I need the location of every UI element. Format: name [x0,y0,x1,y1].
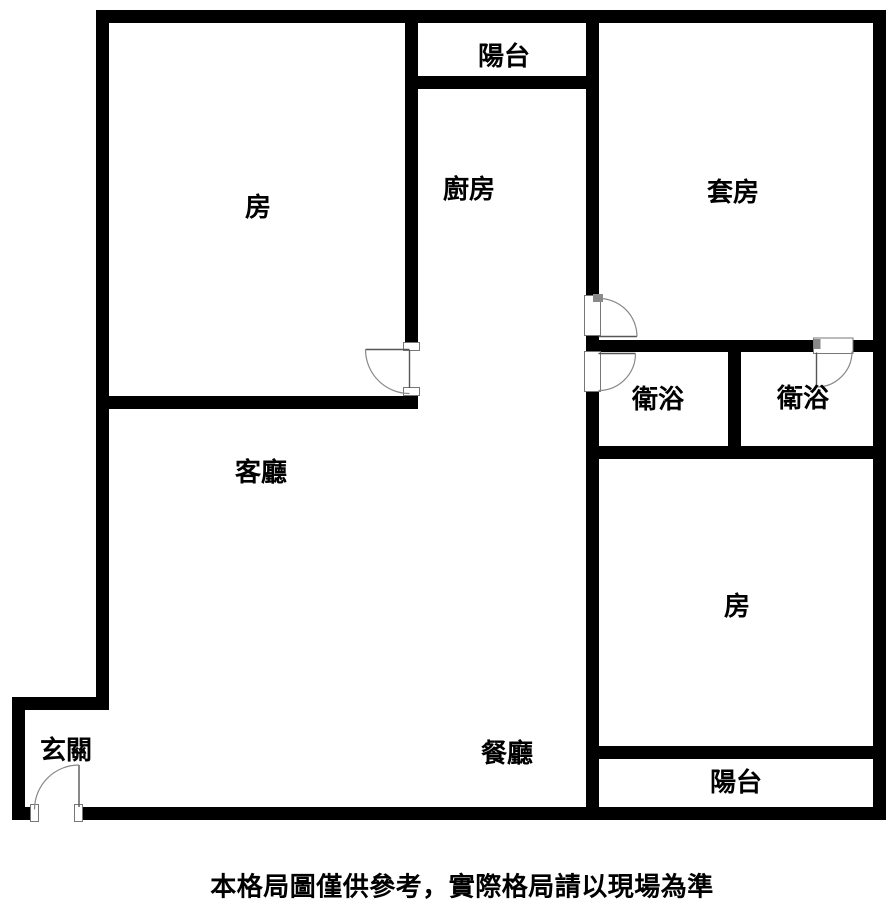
door-swing-bathroom-right [814,338,854,387]
disclaimer-text: 本格局圖僅供參考，實際格局請以現場為準 [210,867,714,904]
room-label-living-room: 客廳 [235,459,287,485]
room-label-balcony-bottom: 陽台 [710,769,762,795]
room-label-bedroom-bottom-right: 房 [724,593,750,619]
room-label-bathroom-right: 衛浴 [777,385,829,411]
room-label-bedroom-top-left: 房 [245,194,271,220]
room-label-entryway: 玄關 [40,737,92,763]
room-label-master-suite: 套房 [707,179,759,205]
room-label-kitchen: 廚房 [443,176,495,202]
room-label-dining-room: 餐廳 [481,740,533,766]
door-swing-entry [31,765,83,822]
floor-plan: 房 陽台 廚房 套房 衛浴 衛浴 客廳 房 餐廳 陽台 玄關 本格局圖僅供參考，… [0,0,888,909]
door-swing-suite [585,294,638,337]
room-label-bathroom-left: 衛浴 [632,386,684,412]
room-label-balcony-top: 陽台 [478,43,530,69]
door-swing-bedroom1 [366,343,420,396]
door-swing-bathroom-left [585,352,636,392]
